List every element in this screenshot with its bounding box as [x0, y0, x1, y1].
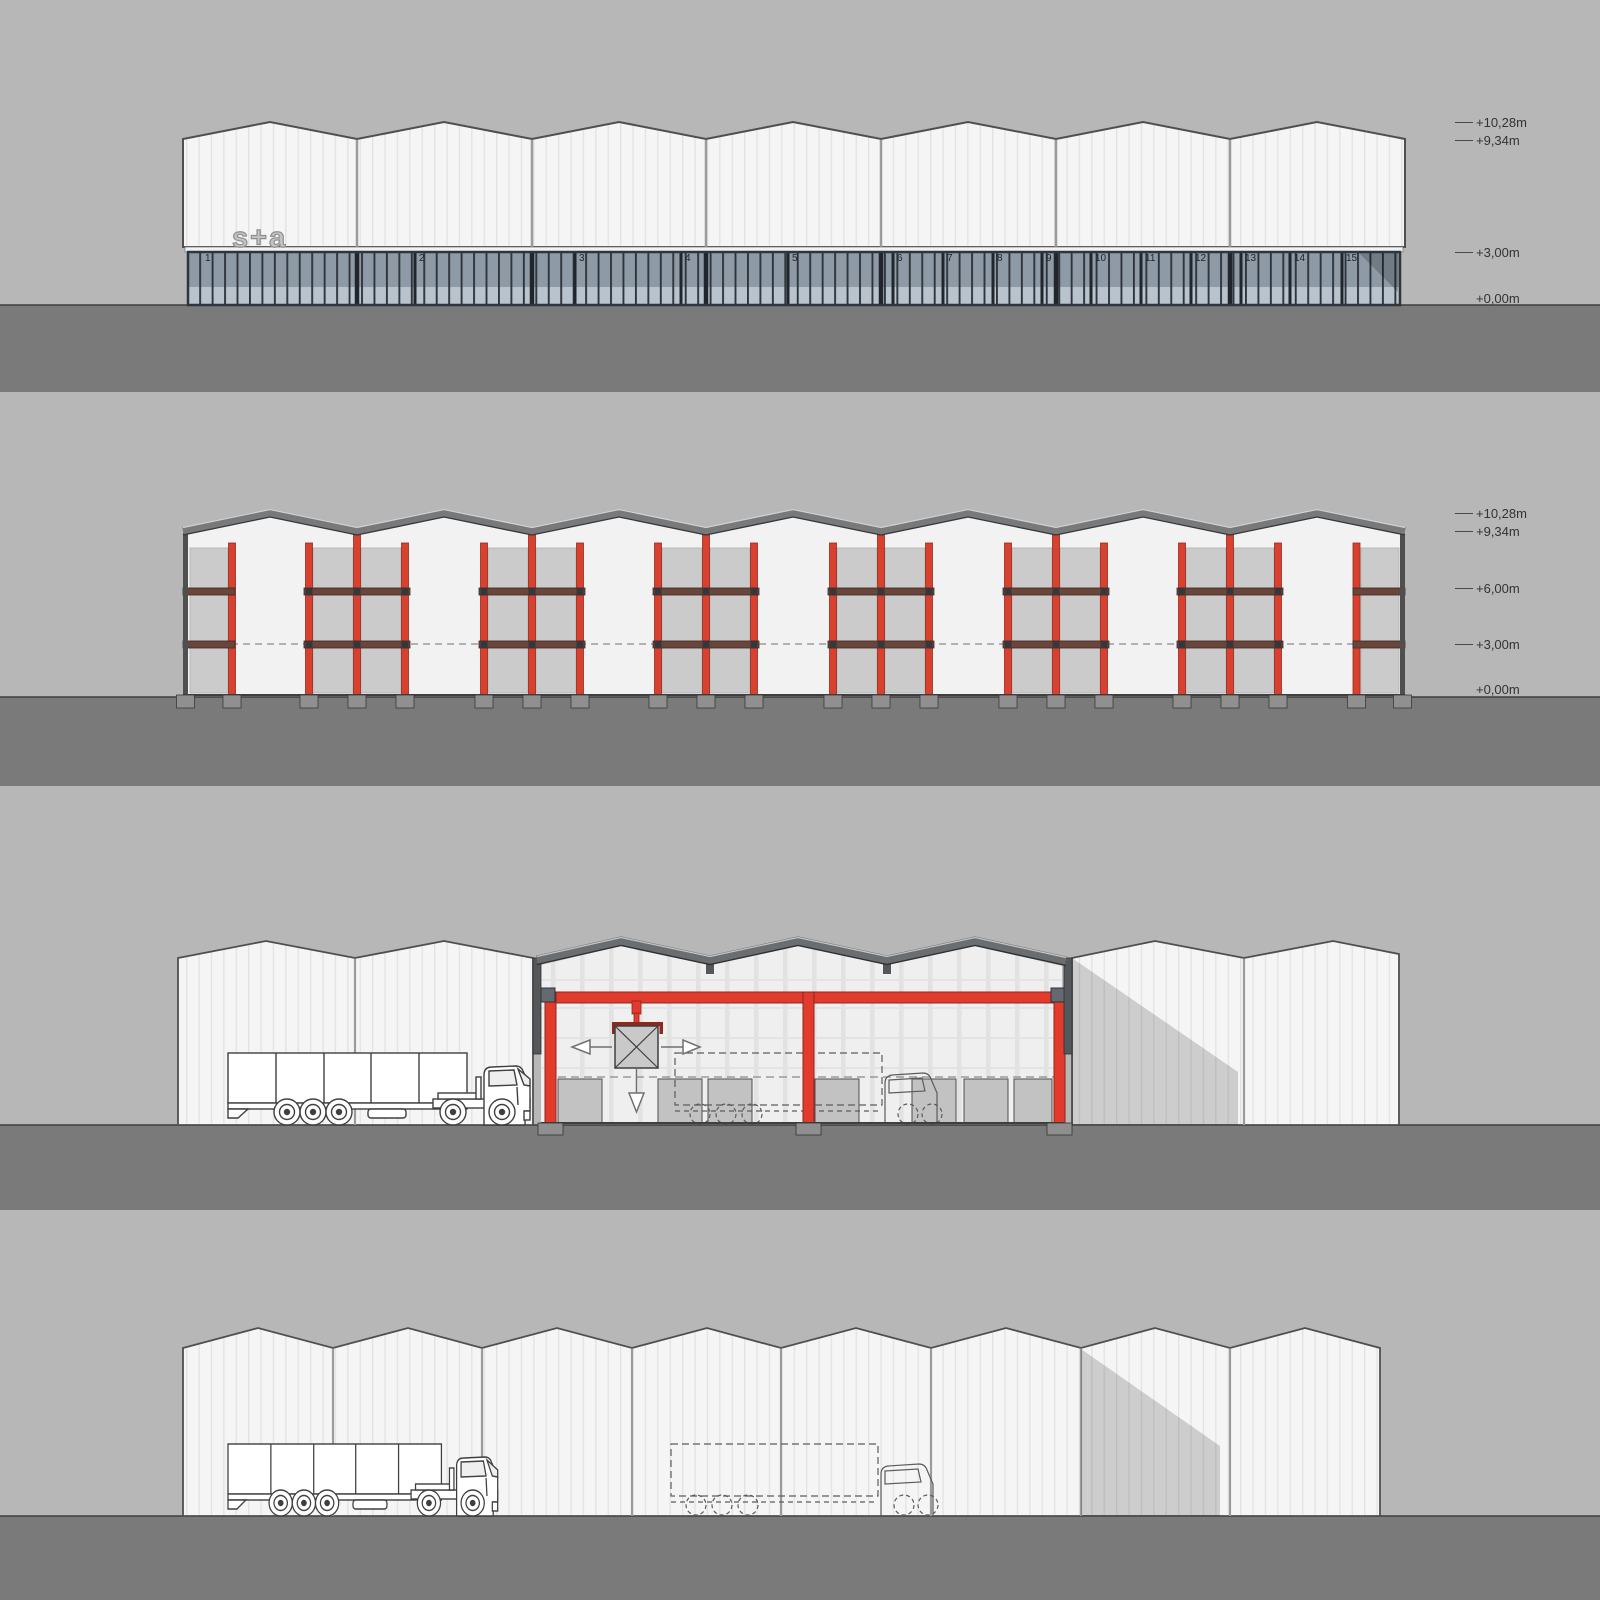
side-elevation [183, 1328, 1380, 1516]
context-wall-right [1072, 941, 1399, 1125]
glazed-strip [188, 252, 1400, 305]
right-end-bay [1353, 533, 1405, 695]
front-elevation [183, 122, 1405, 305]
drawing-vector-layer [0, 0, 1600, 1600]
left-end-bay [183, 533, 236, 695]
architectural-drawing-sheet: s+a 1 2 3 4 5 6 7 8 9 10 11 12 13 14 15 … [0, 0, 1600, 1600]
cross-section [178, 938, 1399, 1136]
longitudinal-section [177, 510, 1412, 709]
sawtooth-cladding [183, 122, 1405, 247]
